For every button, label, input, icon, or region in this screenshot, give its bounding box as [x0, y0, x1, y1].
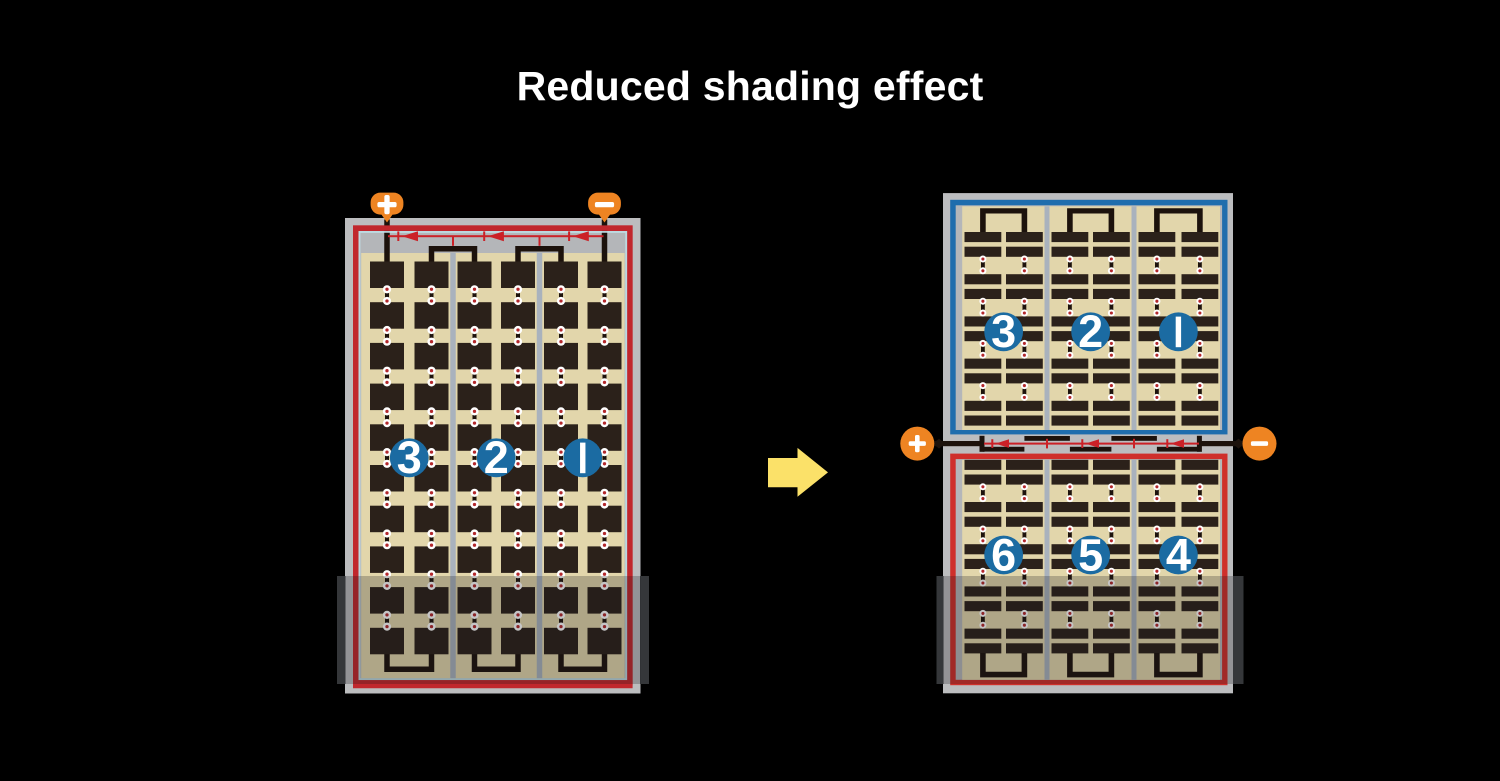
svg-text:3: 3 [991, 306, 1016, 357]
svg-text:5: 5 [1078, 529, 1103, 580]
svg-text:3: 3 [397, 432, 422, 483]
svg-text:4: 4 [1166, 529, 1191, 580]
svg-text:6: 6 [991, 529, 1016, 580]
svg-text:2: 2 [1078, 306, 1103, 357]
svg-text:2: 2 [484, 432, 509, 483]
